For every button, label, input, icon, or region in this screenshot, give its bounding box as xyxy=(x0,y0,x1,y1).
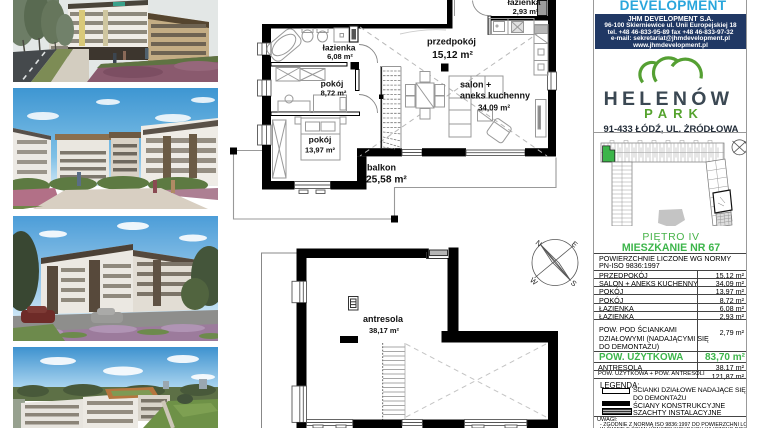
svg-text:łazienka: łazienka xyxy=(322,43,355,53)
svg-text:15,12 m²: 15,12 m² xyxy=(432,50,473,61)
svg-text:aneks kuchenny: aneks kuchenny xyxy=(460,91,530,101)
svg-text:przedpokój: przedpokój xyxy=(427,37,476,47)
svg-text:13,97 m²: 13,97 m² xyxy=(305,146,336,155)
svg-text:łazienka: łazienka xyxy=(507,0,540,7)
svg-text:pokój: pokój xyxy=(321,79,344,89)
svg-text:pokój: pokój xyxy=(309,135,332,145)
svg-text:34,09 m²: 34,09 m² xyxy=(478,104,510,113)
svg-text:balkon: balkon xyxy=(367,163,396,173)
svg-text:6,08 m²: 6,08 m² xyxy=(327,52,353,61)
svg-text:salon +: salon + xyxy=(460,80,491,90)
svg-text:W: W xyxy=(528,276,540,288)
svg-text:8,72 m²: 8,72 m² xyxy=(321,89,347,98)
svg-text:antresola: antresola xyxy=(363,314,404,324)
svg-text:2,93 m²: 2,93 m² xyxy=(513,7,539,16)
svg-text:25,58 m²: 25,58 m² xyxy=(366,175,407,186)
svg-text:38,17 m²: 38,17 m² xyxy=(369,326,400,335)
